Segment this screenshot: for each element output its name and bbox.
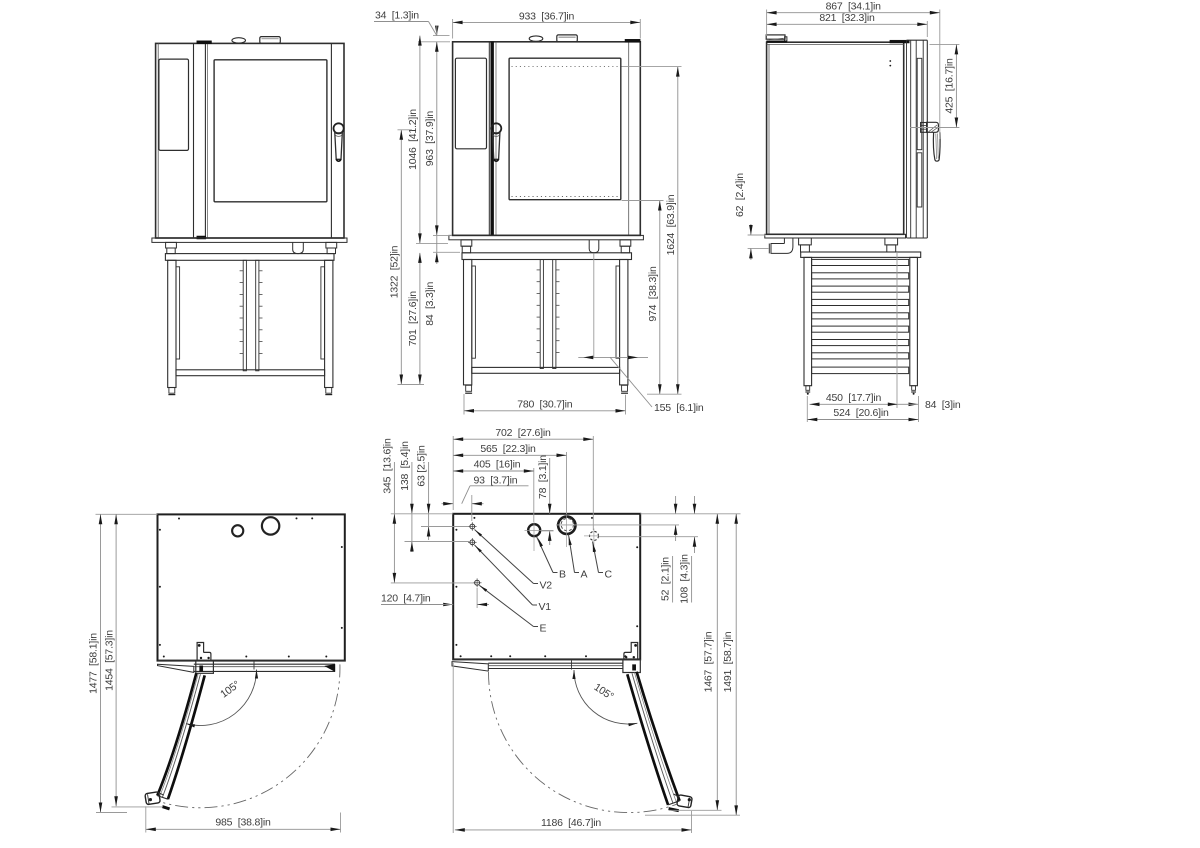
svg-text:524 [20.6]in: 524 [20.6]in [833,407,889,419]
svg-text:108 [4.3]in: 108 [4.3]in [679,554,691,604]
svg-text:985 [38.8]in: 985 [38.8]in [215,817,271,829]
svg-text:1467 [57.7]in: 1467 [57.7]in [703,631,715,692]
svg-text:84 [3.3]in: 84 [3.3]in [424,281,436,325]
svg-text:701 [27.6]in: 701 [27.6]in [407,291,419,347]
svg-text:E: E [540,622,547,634]
svg-text:450 [17.7]in: 450 [17.7]in [826,392,882,404]
svg-text:345 [13.6]in: 345 [13.6]in [381,438,393,494]
svg-text:155 [6.1]in: 155 [6.1]in [654,402,704,414]
svg-text:120 [4.7]in: 120 [4.7]in [381,593,431,605]
svg-text:1046 [41.2]in: 1046 [41.2]in [407,109,419,170]
svg-text:V1: V1 [539,601,552,613]
svg-text:63 [2.5]in: 63 [2.5]in [416,445,428,487]
svg-text:425 [16.7]in: 425 [16.7]in [944,58,956,114]
svg-text:1477 [58.1]in: 1477 [58.1]in [88,633,100,694]
svg-text:963 [37.9]in: 963 [37.9]in [424,111,436,167]
svg-text:933 [36.7]in: 933 [36.7]in [519,10,575,22]
svg-text:405 [16]in: 405 [16]in [474,459,521,471]
svg-text:702 [27.6]in: 702 [27.6]in [495,427,551,439]
svg-text:1491 [58.7]in: 1491 [58.7]in [722,631,734,692]
svg-text:84 [3]in: 84 [3]in [925,399,961,411]
svg-text:1322 [52]in: 1322 [52]in [388,245,400,298]
svg-text:52 [2.1]in: 52 [2.1]in [660,557,672,601]
svg-text:62 [2.4]in: 62 [2.4]in [734,173,746,217]
svg-text:565 [22.3]in: 565 [22.3]in [480,443,536,455]
svg-text:1454 [57.3]in: 1454 [57.3]in [103,630,115,691]
svg-text:867 [34.1]in: 867 [34.1]in [826,1,882,13]
svg-text:1624 [63.9]in: 1624 [63.9]in [665,194,677,255]
svg-text:780 [30.7]in: 780 [30.7]in [517,398,573,410]
svg-text:974 [38.3]in: 974 [38.3]in [647,266,659,322]
svg-text:93 [3.7]in: 93 [3.7]in [474,474,518,486]
svg-text:1186 [46.7]in: 1186 [46.7]in [541,817,601,829]
svg-text:78 [3.1]in: 78 [3.1]in [537,455,549,499]
svg-text:34 [1.3]in: 34 [1.3]in [375,9,419,21]
svg-text:A: A [581,569,588,581]
svg-text:V2: V2 [540,579,553,591]
svg-text:C: C [605,569,613,581]
svg-text:821 [32.3]in: 821 [32.3]in [819,12,875,24]
svg-text:B: B [559,569,566,581]
svg-text:138 [5.4]in: 138 [5.4]in [399,441,411,491]
